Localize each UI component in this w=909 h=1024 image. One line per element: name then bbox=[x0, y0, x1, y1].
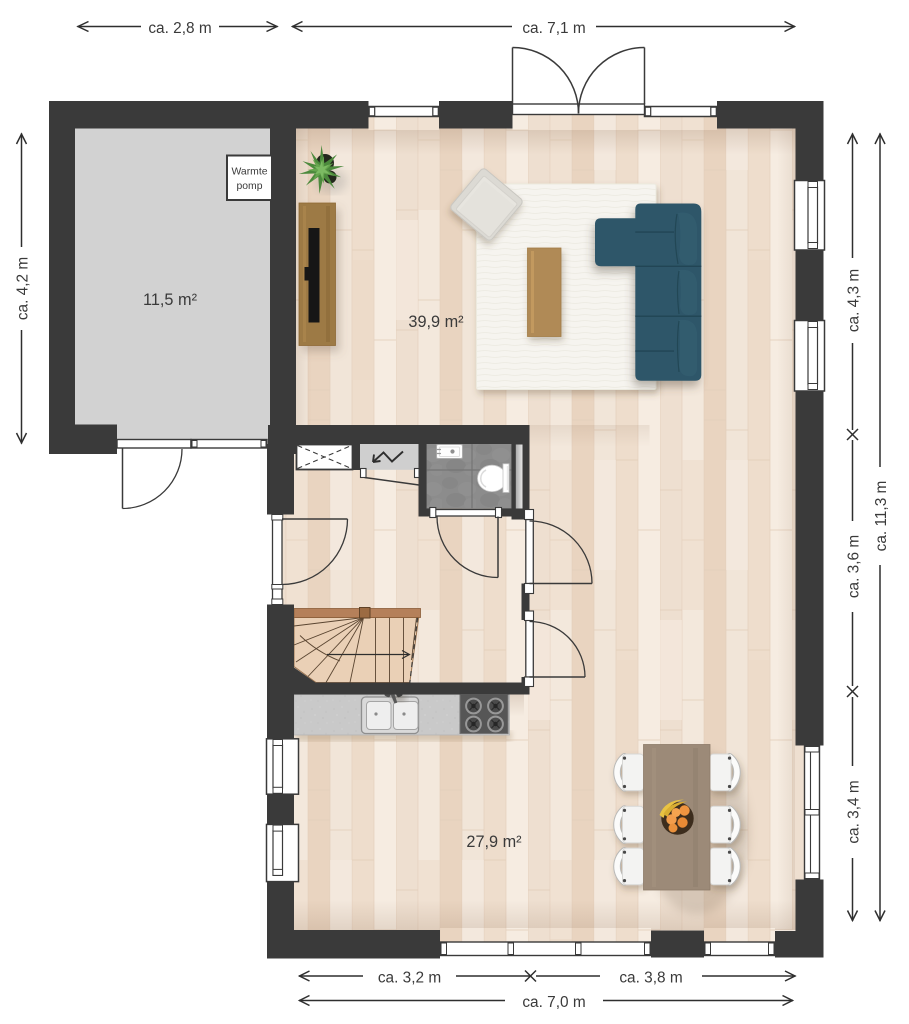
svg-text:ca. 3,4 m: ca. 3,4 m bbox=[846, 780, 863, 843]
svg-text:ca. 3,8 m: ca. 3,8 m bbox=[619, 970, 682, 987]
svg-text:ca. 4,3 m: ca. 4,3 m bbox=[846, 269, 863, 332]
svg-text:11,5 m²: 11,5 m² bbox=[143, 291, 198, 309]
svg-text:pomp: pomp bbox=[237, 181, 263, 192]
svg-text:ca. 11,3 m: ca. 11,3 m bbox=[873, 481, 890, 552]
svg-text:ca. 2,8 m: ca. 2,8 m bbox=[148, 20, 211, 37]
svg-text:ca. 4,2 m: ca. 4,2 m bbox=[15, 257, 32, 320]
svg-text:39,9 m²: 39,9 m² bbox=[408, 313, 464, 331]
svg-text:ca. 3,2 m: ca. 3,2 m bbox=[378, 970, 441, 987]
svg-text:ca. 3,6 m: ca. 3,6 m bbox=[846, 535, 863, 598]
svg-text:ca. 7,0 m: ca. 7,0 m bbox=[522, 994, 585, 1011]
svg-text:ca. 7,1 m: ca. 7,1 m bbox=[522, 20, 585, 37]
svg-text:Warmte: Warmte bbox=[232, 167, 268, 178]
svg-text:27,9 m²: 27,9 m² bbox=[466, 833, 522, 851]
